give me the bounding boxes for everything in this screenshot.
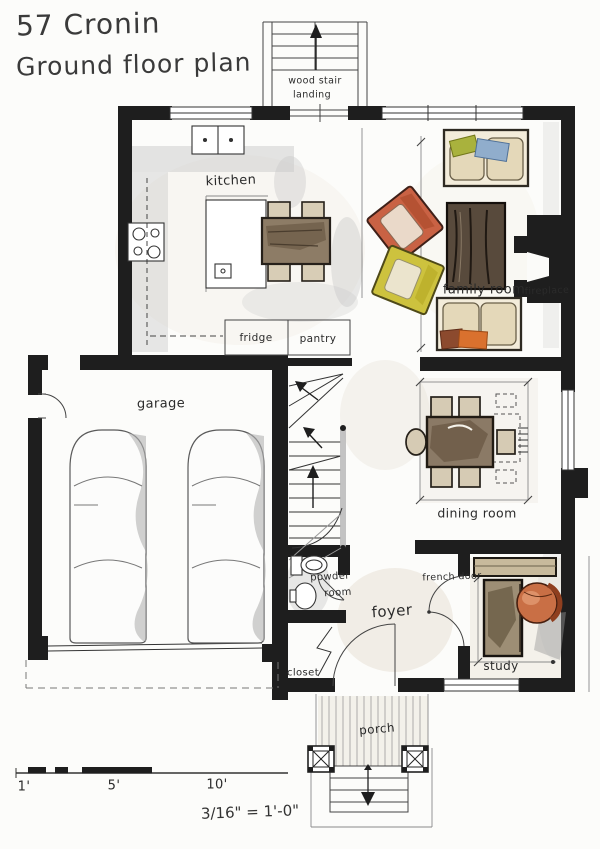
label-garage: garage — [137, 396, 185, 412]
scale-tick-10ft: 10' — [206, 778, 227, 793]
label-dining-room: dining room — [437, 506, 516, 521]
car-left — [70, 430, 148, 643]
floor-plan-drawing — [0, 0, 600, 849]
porch-steps — [330, 766, 408, 812]
coffee-table — [447, 203, 505, 289]
label-closet: closet — [287, 668, 319, 679]
toilet-tank — [291, 556, 302, 575]
scale-bar — [16, 767, 288, 778]
scale-ratio-text: 3/16" = 1'-0" — [201, 801, 300, 822]
scale-tick-5ft: 5' — [108, 779, 121, 794]
plan-title-subtitle: Ground floor plan — [16, 48, 252, 82]
stairs-up-arrow — [310, 24, 322, 38]
plan-title-address: 57 Cronin — [16, 6, 161, 42]
label-foyer: foyer — [371, 601, 413, 622]
garage-apron-dashed — [26, 660, 278, 688]
label-fireplace: fireplace — [524, 285, 569, 298]
porch-column-left — [308, 746, 334, 772]
label-family-room: family room — [443, 283, 525, 298]
label-kitchen: kitchen — [205, 173, 256, 190]
porch-column-right — [402, 746, 428, 772]
label-study: study — [483, 659, 518, 673]
steps-down-arrow — [361, 792, 375, 806]
label-wood-stair-line2: landing — [293, 90, 331, 101]
sofa-bottom — [437, 298, 521, 350]
pillow-orange — [458, 330, 487, 349]
label-fridge: fridge — [239, 332, 272, 344]
label-powder-room-line2: room — [324, 587, 352, 599]
label-french-door: french door — [422, 570, 481, 583]
handrail — [340, 428, 346, 548]
sofa-top — [444, 130, 528, 186]
scale-tick-1ft: 1' — [18, 780, 31, 795]
floor-plan-page: 57 Cronin Ground floor plan kitchen fami… — [0, 0, 600, 849]
sink — [294, 583, 316, 609]
label-pantry: pantry — [300, 333, 337, 345]
study-furniture — [474, 558, 566, 660]
car-right — [188, 430, 266, 643]
label-powder-room-line1: powder — [310, 570, 350, 583]
bookshelf — [474, 558, 556, 576]
label-wood-stair-line1: wood stair — [288, 76, 342, 87]
